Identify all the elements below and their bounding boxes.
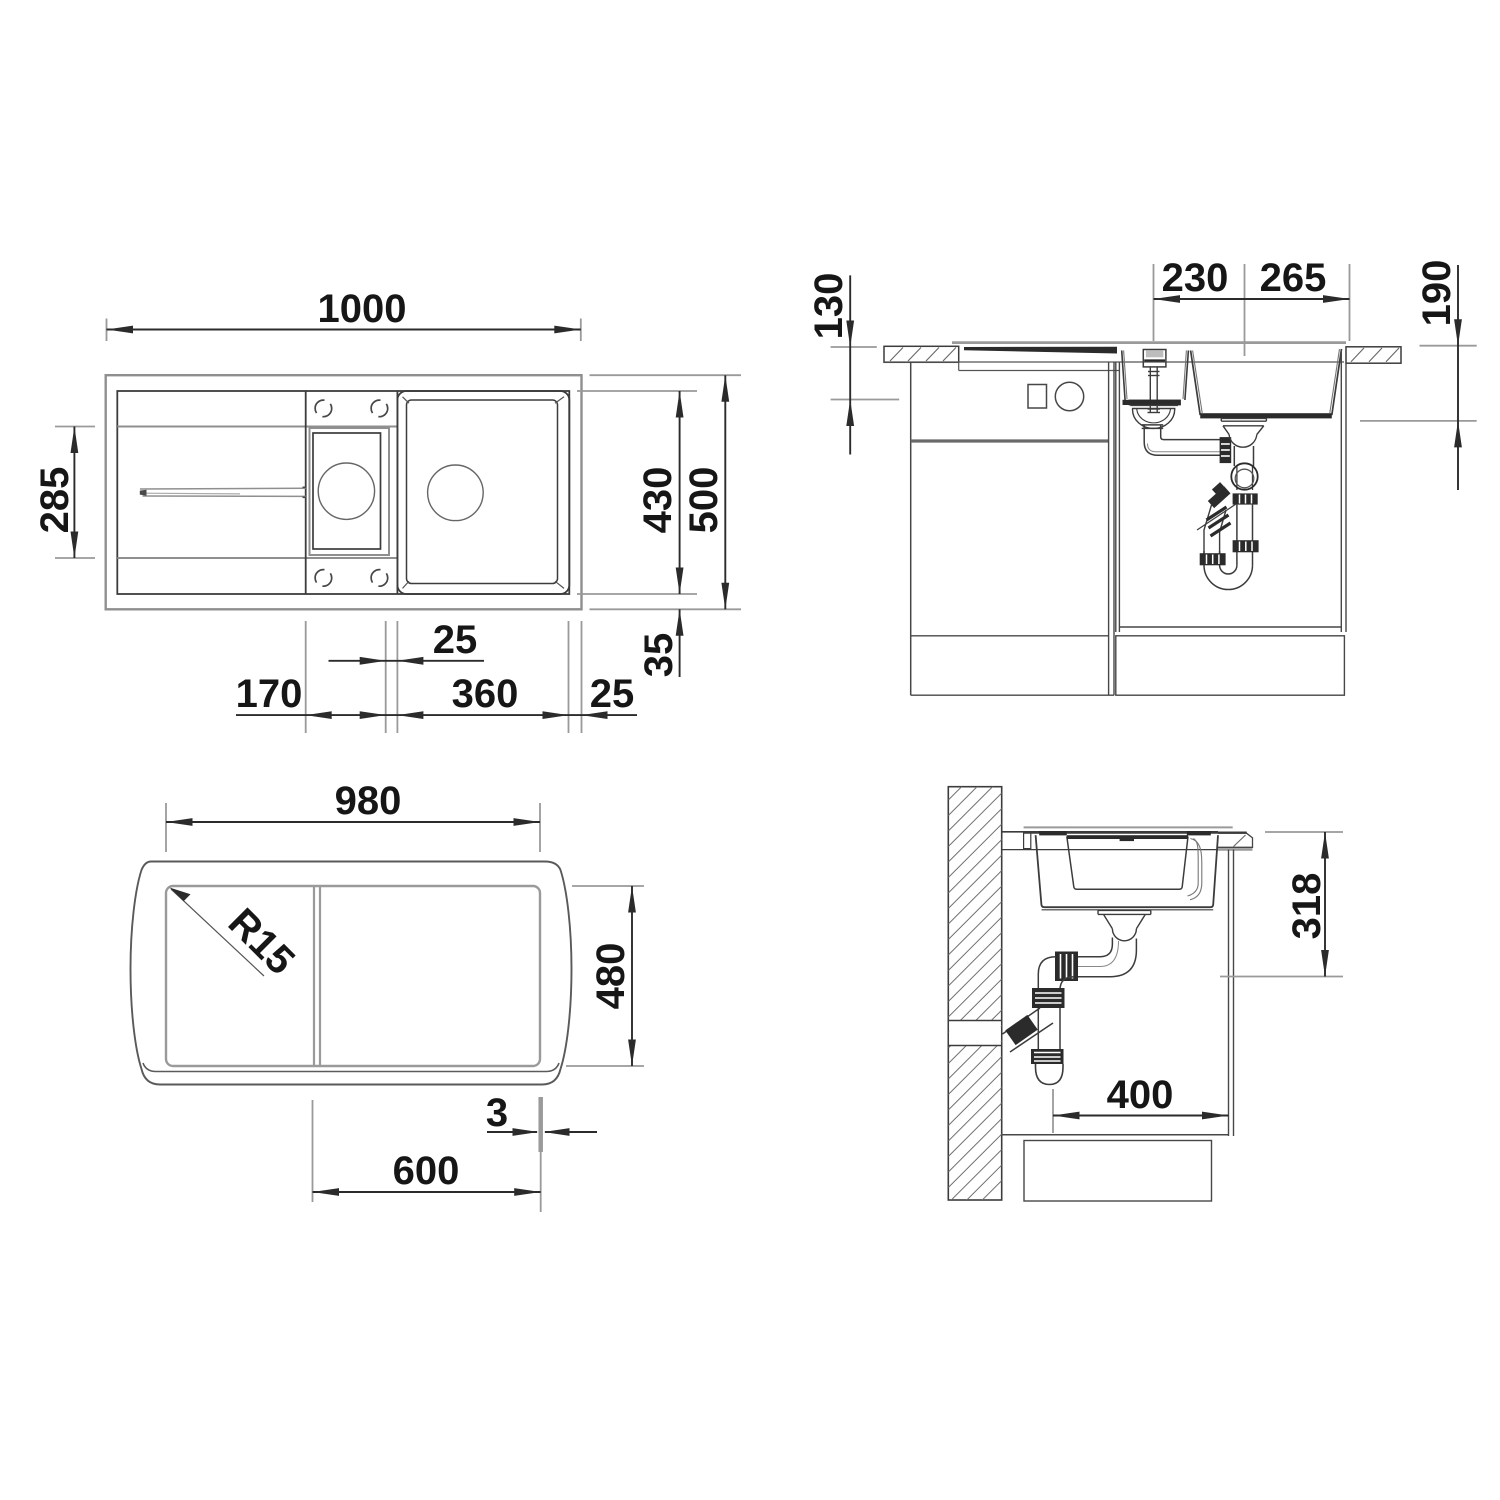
svg-text:600: 600 [393,1149,460,1193]
svg-text:480: 480 [589,943,633,1010]
svg-text:190: 190 [1415,260,1459,327]
svg-text:430: 430 [636,467,680,534]
svg-text:1000: 1000 [318,287,407,331]
svg-text:3: 3 [486,1091,508,1135]
svg-text:25: 25 [433,618,478,662]
svg-text:980: 980 [335,779,402,823]
svg-text:500: 500 [682,467,726,534]
svg-text:318: 318 [1285,873,1329,940]
svg-text:130: 130 [807,273,851,340]
svg-text:360: 360 [452,672,519,716]
svg-text:400: 400 [1107,1073,1174,1117]
svg-text:170: 170 [236,672,303,716]
svg-text:265: 265 [1260,256,1327,300]
svg-text:25: 25 [590,672,635,716]
svg-text:230: 230 [1162,256,1229,300]
svg-text:35: 35 [637,633,681,678]
svg-text:285: 285 [33,467,77,534]
